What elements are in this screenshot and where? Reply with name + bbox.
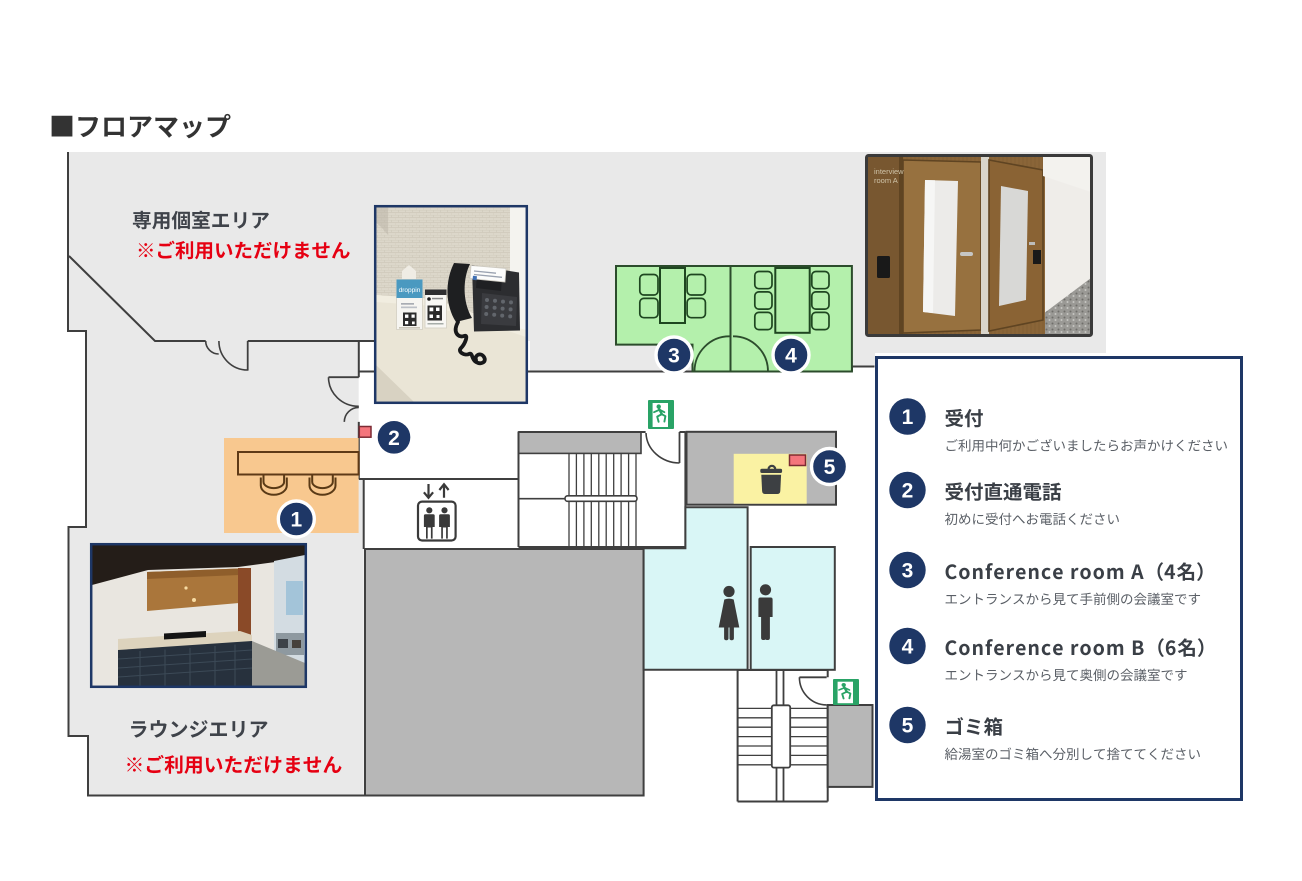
svg-text:4: 4 <box>902 636 914 659</box>
svg-text:5: 5 <box>902 715 914 738</box>
svg-text:2: 2 <box>902 480 914 503</box>
svg-text:1: 1 <box>290 509 302 532</box>
svg-text:room A: room A <box>874 176 898 185</box>
svg-text:4: 4 <box>785 345 797 368</box>
svg-text:2: 2 <box>388 427 400 450</box>
svg-text:droppin: droppin <box>399 287 421 294</box>
svg-text:interview: interview <box>874 167 904 176</box>
svg-text:3: 3 <box>668 345 680 368</box>
svg-text:1: 1 <box>902 406 914 429</box>
svg-text:3: 3 <box>902 560 914 583</box>
svg-text:5: 5 <box>824 456 836 479</box>
